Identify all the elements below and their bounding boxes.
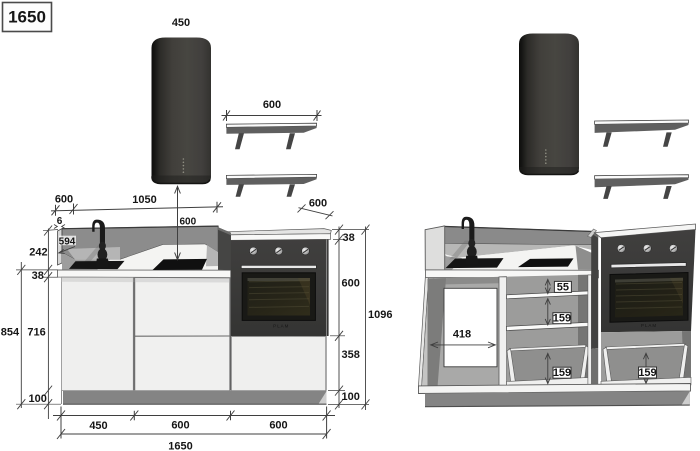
- svg-text:38: 38: [32, 270, 44, 282]
- svg-text:159: 159: [638, 367, 656, 379]
- svg-text:159: 159: [553, 313, 571, 325]
- svg-text:P L A M: P L A M: [641, 323, 657, 328]
- svg-text:600: 600: [263, 99, 281, 111]
- svg-text:1096: 1096: [368, 309, 392, 321]
- svg-text:594: 594: [59, 237, 76, 248]
- svg-text:6: 6: [57, 216, 63, 227]
- svg-text:P L A M: P L A M: [273, 324, 289, 329]
- svg-text:450: 450: [172, 17, 190, 29]
- svg-text:1650: 1650: [168, 441, 192, 451]
- svg-text:38: 38: [343, 232, 355, 244]
- svg-text:600: 600: [309, 198, 327, 210]
- svg-text:600: 600: [342, 278, 360, 290]
- svg-text:242: 242: [29, 246, 47, 258]
- svg-text:600: 600: [171, 420, 189, 432]
- svg-text:358: 358: [342, 349, 360, 361]
- svg-text:159: 159: [553, 367, 571, 379]
- svg-text:600: 600: [180, 217, 197, 228]
- svg-text:55: 55: [557, 281, 569, 293]
- svg-text:1650: 1650: [8, 8, 46, 27]
- svg-text:418: 418: [453, 329, 471, 341]
- svg-text:716: 716: [27, 326, 45, 338]
- svg-text:600: 600: [269, 420, 287, 432]
- svg-text:600: 600: [55, 194, 73, 206]
- svg-text:450: 450: [89, 420, 107, 432]
- svg-text:1050: 1050: [132, 194, 156, 206]
- svg-text:854: 854: [1, 326, 20, 338]
- svg-text:100: 100: [29, 393, 47, 405]
- svg-text:100: 100: [342, 391, 360, 403]
